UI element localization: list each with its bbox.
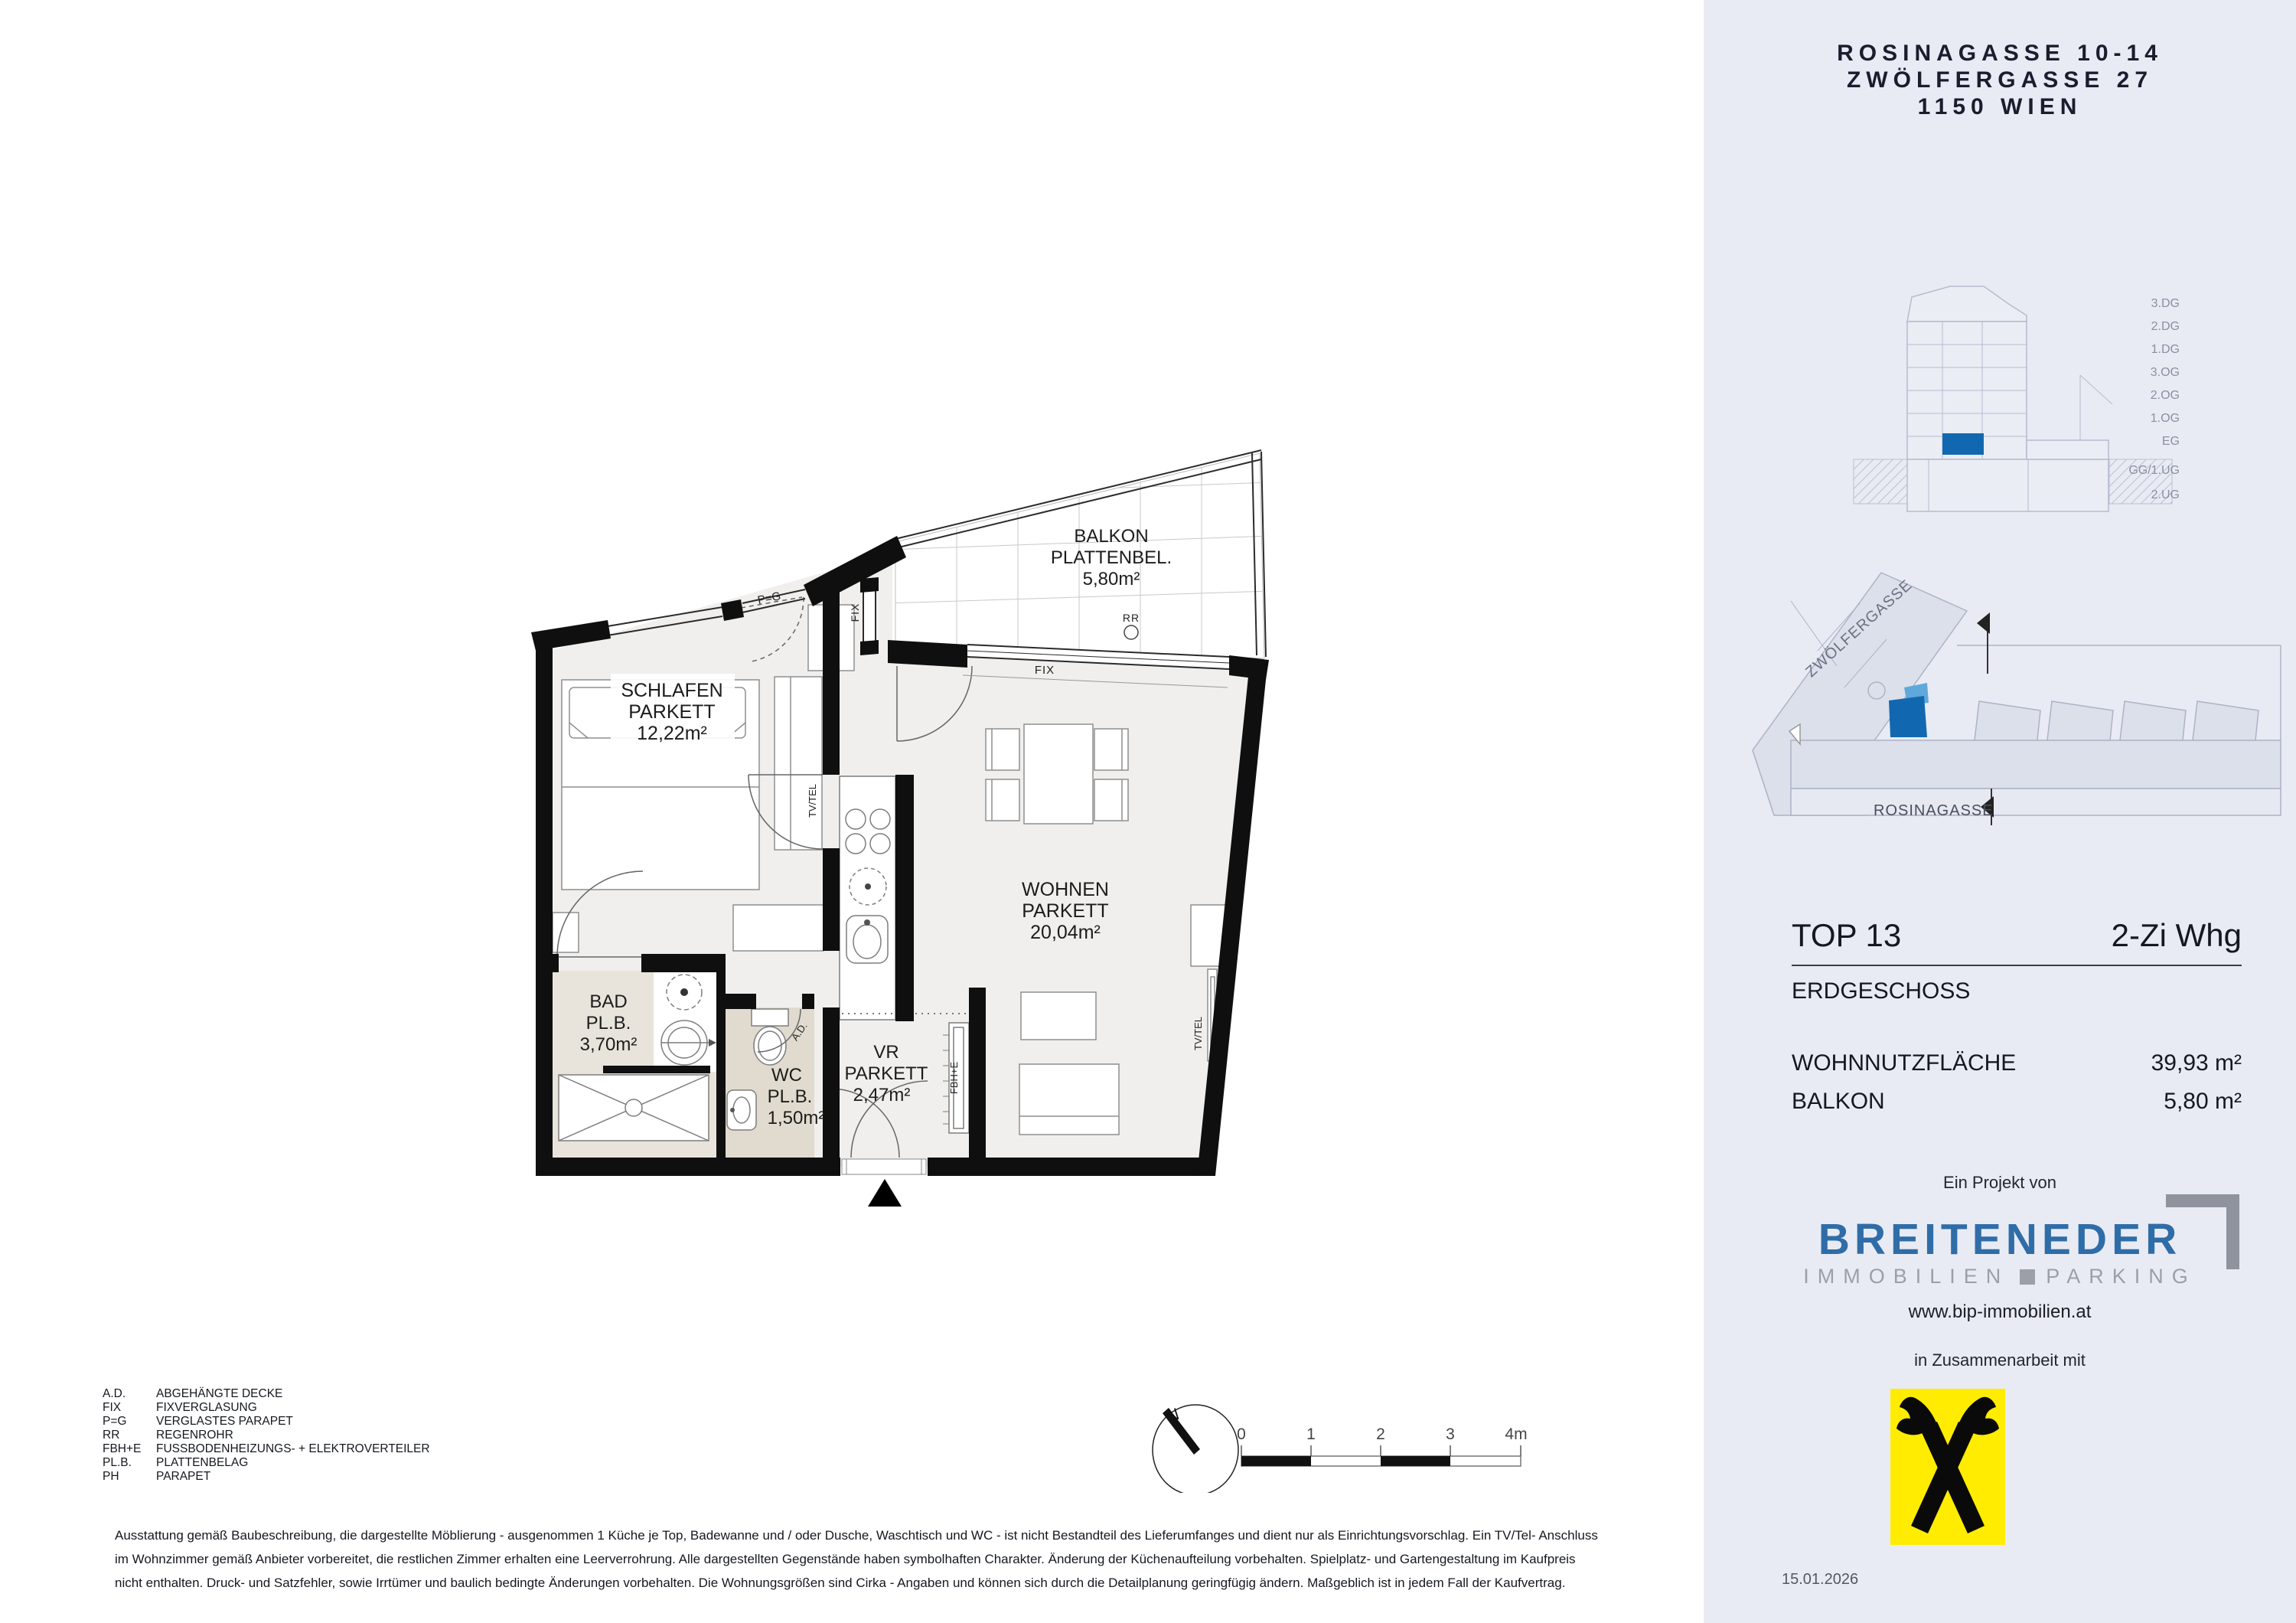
disclaimer-line: Ausstattung gemäß Baubeschreibung, die d… [115,1523,1645,1547]
disclaimer-line: im Wohnzimmer gemäß Anbieter vorbereitet… [115,1547,1645,1571]
room-label: VR [873,1042,899,1063]
legend-abbr: A.D. [103,1387,156,1401]
room-label: PARKETT [628,701,715,723]
area-label: BALKON [1792,1089,1885,1114]
tvtel-label: TV/TEL [807,784,818,818]
legend-abbr: PL.B. [103,1456,156,1470]
legend-row: PHPARAPET [103,1470,430,1484]
room-label: BAD [589,991,627,1012]
room-label: 5,80m² [1083,569,1140,589]
floor-level-label: 3.OG [2151,366,2180,380]
highlighted-unit-section [1942,433,1984,455]
area-value: 5,80 m² [2164,1089,2242,1115]
legend-desc: PARAPET [156,1470,210,1483]
room-label: 12,22m² [637,723,707,744]
brand-sub-left: IMMOBILIEN [1803,1265,2009,1288]
legend-row: PL.B.PLATTENBELAG [103,1456,430,1470]
scale-tick: 3 [1446,1425,1455,1443]
room-label: SCHLAFEN [621,680,722,701]
unit-id: TOP 13 [1792,917,1901,954]
legend-desc: VERGLASTES PARAPET [156,1415,293,1428]
room-label: PLATTENBEL. [1051,547,1172,568]
legend-abbr: RR [103,1429,156,1442]
site-plan-diagram [1745,559,2296,834]
address-block: ROSINAGASSE 10-14 ZWÖLFERGASSE 27 1150 W… [1704,40,2296,120]
disclaimer-line: nicht enthalten. Druck- und Satzfehler, … [115,1571,1645,1595]
tvtel-label: TV/TEL [1192,1017,1204,1050]
legend-row: RRREGENROHR [103,1429,430,1442]
address-line: 1150 WIEN [1704,93,2296,120]
fix-label: FIX [1035,664,1055,677]
kitchen [840,776,895,1020]
brand-sub-right: PARKING [2046,1265,2197,1288]
area-row: WOHNNUTZFLÄCHE 39,93 m² [1792,1050,2242,1076]
scale-tick: 2 [1376,1425,1385,1443]
bad-niche [654,971,716,1072]
legend-abbr: PH [103,1470,156,1484]
room-label: 1,50m² [768,1108,825,1128]
room-label: WC [771,1065,802,1086]
floor-level-label: 1.DG [2151,343,2180,357]
area-label: WOHNNUTZFLÄCHE [1792,1050,2016,1076]
room-label: PARKETT [1022,900,1108,922]
entrance-door [842,1159,926,1207]
legend-desc: PLATTENBELAG [156,1456,248,1469]
room-label: BALKON [1074,526,1148,547]
legend-row: FBH+EFUSSBODENHEIZUNGS- + ELEKTROVERTEIL… [103,1442,430,1456]
unit-type: 2-Zi Whg [2112,917,2242,954]
north-arrow-icon: N [1153,1404,1238,1493]
floor-level-label: EG [2162,435,2180,449]
scale-tick: 0 [1237,1425,1246,1443]
disclaimer: Ausstattung gemäß Baubeschreibung, die d… [115,1523,1645,1595]
room-label: 2,47m² [853,1085,911,1105]
legend-row: FIXFIXVERGLASUNG [103,1401,430,1415]
north-and-scale: N 0 1 2 3 4m [1144,1393,1542,1493]
room-label: PL.B. [586,1013,631,1034]
floorplan-sheet: SCHLAFEN PARKETT 12,22m² BALKON PLATTENB… [0,0,2296,1623]
legend-abbr: FBH+E [103,1442,156,1456]
brand-sub: IMMOBILIEN PARKING [1704,1265,2296,1288]
cooperation-text: in Zusammenarbeit mit [1704,1350,2296,1370]
divider [1792,965,2242,966]
room-label: 20,04m² [1030,922,1101,943]
scale-bar: 0 1 2 3 4m [1237,1425,1527,1466]
brand-logo: BREITENEDER [1704,1214,2296,1265]
floor-plan-drawing: SCHLAFEN PARKETT 12,22m² BALKON PLATTENB… [528,429,1293,1225]
floor-level-label: GG/1.UG [2128,464,2180,478]
legend-desc: ABGEHÄNGTE DECKE [156,1387,282,1400]
room-label: PARKETT [845,1063,928,1084]
scale-tick: 1 [1306,1425,1316,1443]
legend-abbr: FIX [103,1401,156,1415]
room-label: WOHNEN [1022,879,1109,900]
room-label: PL.B. [768,1086,813,1107]
legend-row: A.D.ABGEHÄNGTE DECKE [103,1387,430,1401]
area-row: BALKON 5,80 m² [1792,1089,2242,1115]
fix-label: FIX [849,603,861,622]
svg-text:N: N [1164,1404,1182,1426]
brand-square-icon [2020,1269,2035,1285]
project-prefix: Ein Projekt von [1704,1173,2296,1193]
area-value: 39,93 m² [2151,1050,2242,1076]
floor-level-label: 3.DG [2151,297,2180,311]
rr-label: RR [1123,612,1140,624]
floor-level-label: 2.UG [2151,488,2180,502]
floor-level-label: 2.DG [2151,320,2180,334]
room-label: 3,70m² [580,1034,638,1055]
fbhe-label: FBH+E [948,1062,960,1095]
legend-row: P=GVERGLASTES PARAPET [103,1415,430,1429]
raiffeisen-logo-icon [1890,1389,2005,1545]
highlighted-unit-site [1889,696,1927,737]
floor-level-label: 1.OG [2151,412,2180,426]
legend-abbr: P=G [103,1415,156,1429]
floor-level-label: 2.OG [2151,389,2180,403]
legend-desc: REGENROHR [156,1429,233,1442]
street-label-rosinagasse: ROSINAGASSE [1874,802,1994,820]
address-line: ROSINAGASSE 10-14 [1704,40,2296,67]
legend-desc: FUSSBODENHEIZUNGS- + ELEKTROVERTEILER [156,1442,430,1455]
date-stamp: 15.01.2026 [1782,1571,1858,1589]
unit-floor: ERDGESCHOSS [1792,978,1970,1004]
legend-desc: FIXVERGLASUNG [156,1401,257,1414]
website-url: www.bip-immobilien.at [1704,1301,2296,1323]
unit-header: TOP 13 2-Zi Whg [1792,917,2242,957]
legend: A.D.ABGEHÄNGTE DECKE FIXFIXVERGLASUNG P=… [103,1387,430,1484]
entrance-arrow-icon [868,1179,902,1207]
scale-tick: 4m [1505,1425,1527,1443]
address-line: ZWÖLFERGASSE 27 [1704,67,2296,93]
